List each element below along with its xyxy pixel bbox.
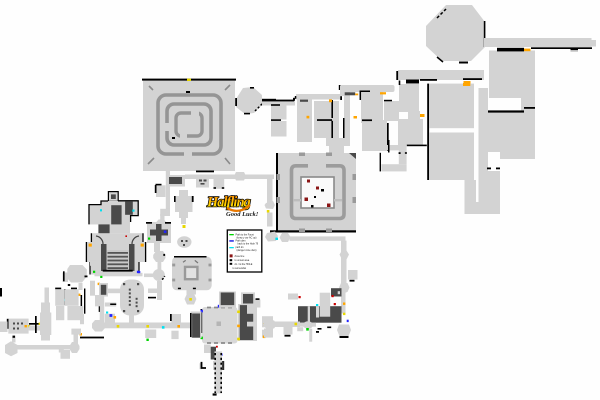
svg-text:back to the Hole 79: back to the Hole 79 xyxy=(238,243,259,246)
svg-text:dn / to the HOLE: dn / to the HOLE xyxy=(235,263,253,266)
svg-text:to somewhat: to somewhat xyxy=(233,267,247,270)
svg-text:Zone line: Zone line xyxy=(235,255,246,258)
svg-text:to unrest area: to unrest area xyxy=(235,259,250,262)
svg-text:Good Luck!: Good Luck! xyxy=(226,211,259,218)
svg-text:(danger zone dwn): (danger zone dwn) xyxy=(237,249,257,252)
